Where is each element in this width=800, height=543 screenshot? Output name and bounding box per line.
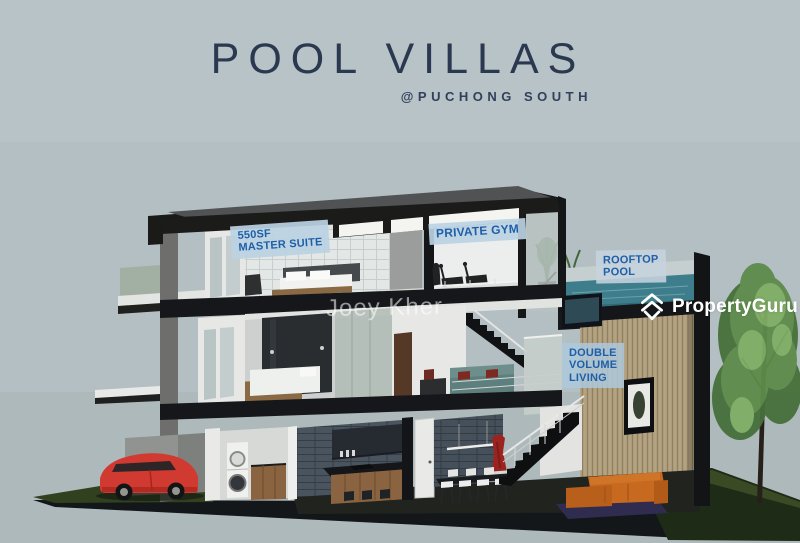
agent-watermark: Joey Kher: [326, 293, 444, 323]
annotation-line: DOUBLE: [569, 347, 617, 359]
annotation-line: POOL: [603, 266, 659, 279]
annotation-double-volume-living: DOUBLE VOLUME LIVING: [562, 343, 624, 388]
wall-tv: [562, 293, 602, 329]
pool-villas-poster: POOL VILLAS @PUCHONG SOUTH 550SF MASTER …: [0, 0, 800, 543]
annotation-line: LIVING: [569, 372, 617, 384]
kitchen: [297, 420, 410, 504]
framed-art: [624, 377, 654, 435]
title-block: POOL VILLAS @PUCHONG SOUTH: [198, 36, 598, 104]
annotation-line: ROOFTOP: [603, 254, 659, 267]
propertyguru-house-chevrons-icon: [637, 291, 667, 323]
page-title: POOL VILLAS: [198, 36, 598, 83]
laundry: [220, 427, 288, 500]
timber-door: [394, 332, 412, 402]
annotation-master-suite: 550SF MASTER SUITE: [230, 220, 330, 259]
page-subtitle: @PUCHONG SOUTH: [198, 89, 598, 104]
brand-watermark-text: PropertyGuru: [672, 296, 798, 318]
brand-watermark: PropertyGuru: [637, 291, 798, 323]
annotation-rooftop-pool: ROOFTOP POOL: [596, 249, 666, 283]
annotation-line: PRIVATE GYM: [436, 222, 520, 240]
laundry-cabinet: [251, 464, 286, 500]
lower-window-wall: [198, 315, 245, 412]
white-door: [415, 418, 434, 498]
annotation-line: VOLUME: [569, 359, 617, 371]
